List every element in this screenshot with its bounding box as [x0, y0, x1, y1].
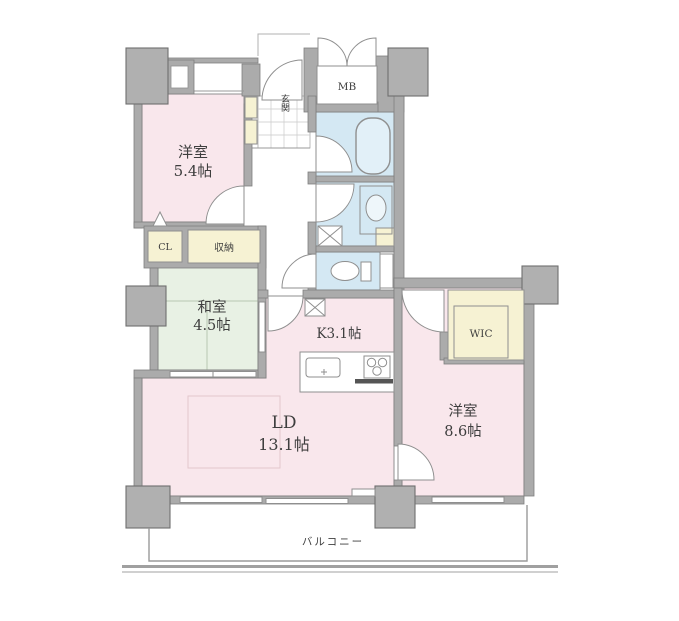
ld-balcony-window-2	[266, 499, 348, 504]
label-cl: CL	[158, 242, 172, 253]
label-ld-size: 13.1帖	[258, 435, 310, 454]
mb-door-left-swing	[318, 38, 347, 66]
pillar-top-center	[388, 48, 428, 96]
ld-balcony-window	[180, 497, 262, 503]
toilet-icon	[331, 262, 371, 282]
shoe-cabinet-upper	[245, 97, 257, 118]
refrigerator-space-icon	[305, 299, 325, 316]
pillar-top-right	[522, 266, 558, 304]
toilet-door-swing	[282, 254, 316, 288]
japanese-side-fusuma	[259, 302, 265, 352]
label-ld-name: LD	[272, 413, 297, 433]
wic-box	[448, 290, 524, 360]
label-japanese-name: 和室	[198, 299, 227, 316]
porch-outline	[258, 34, 310, 56]
ld-side-slit-window	[352, 489, 375, 496]
label-western1-name: 洋室	[178, 143, 208, 161]
pillar-mid-left	[126, 286, 166, 326]
label-kitchen: K3.1帖	[316, 326, 361, 342]
pillar-bottom-left	[126, 486, 170, 528]
kitchen-counter	[300, 352, 394, 392]
ground-line	[122, 565, 558, 572]
label-western1-size: 5.4帖	[174, 162, 213, 180]
shoe-cabinet-lower	[245, 120, 257, 144]
washroom-counter	[376, 228, 394, 246]
mb-door-right-swing	[347, 38, 376, 66]
washing-machine-icon	[318, 226, 342, 246]
label-balcony: バルコニー	[302, 536, 364, 548]
label-wic: WIC	[470, 328, 493, 340]
western2-balcony-window	[432, 497, 504, 503]
label-western2-name: 洋室	[449, 403, 478, 420]
label-entrance: 玄関	[279, 93, 290, 113]
pillar-bottom-center	[375, 486, 415, 528]
floor-plan-drawing: 洋室 5.4帖 玄関 MB CL 収納 和室 4.5帖 K3.1帖 WIC LD…	[0, 0, 679, 621]
floor-plan-page: 洋室 5.4帖 玄関 MB CL 収納 和室 4.5帖 K3.1帖 WIC LD…	[0, 0, 679, 621]
label-japanese-size: 4.5帖	[193, 317, 231, 334]
label-oshiire: 収納	[214, 241, 234, 254]
bathtub-icon	[356, 118, 390, 174]
label-western2-size: 8.6帖	[444, 423, 482, 440]
balcony-rail	[149, 505, 527, 561]
pipe-space	[380, 254, 393, 288]
pillar-top-left	[126, 48, 168, 104]
label-mb: MB	[338, 81, 357, 93]
wash-basin-icon	[366, 195, 386, 221]
